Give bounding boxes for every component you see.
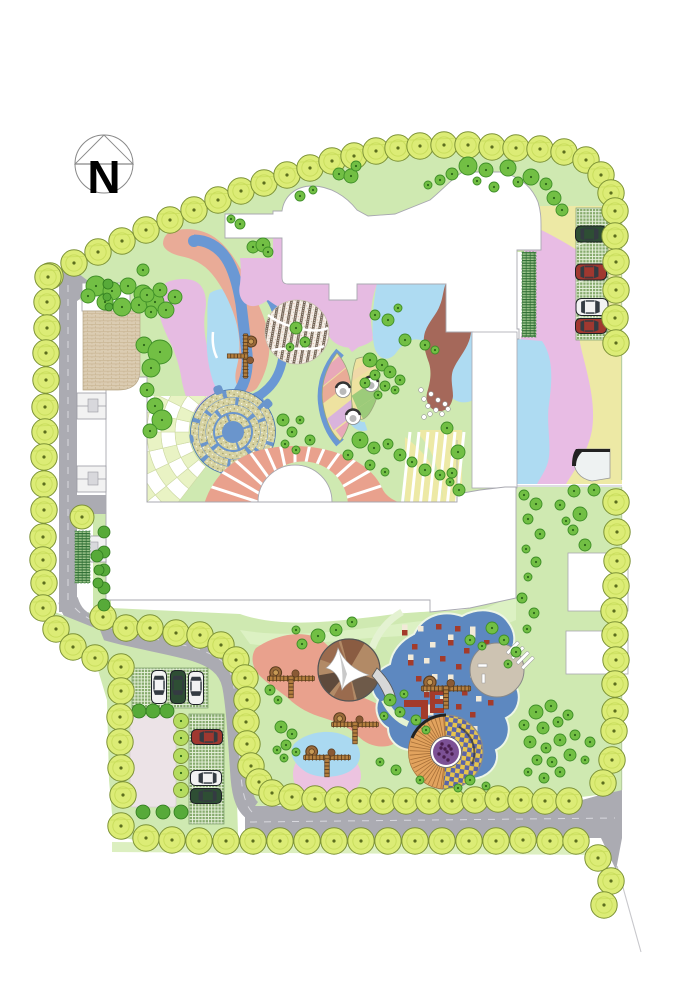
svg-text:N: N <box>87 151 120 203</box>
